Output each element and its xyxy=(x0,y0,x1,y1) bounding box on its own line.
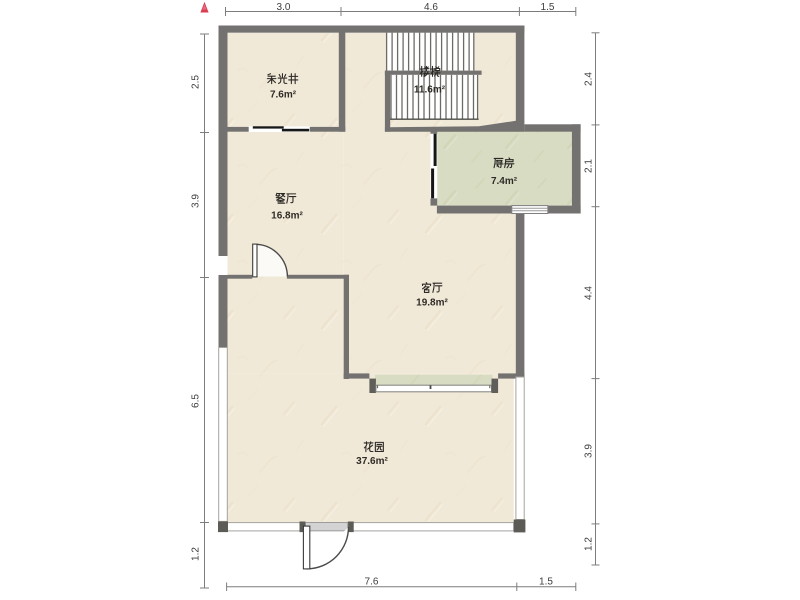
svg-text:7.6: 7.6 xyxy=(365,577,379,588)
svg-text:1.2: 1.2 xyxy=(584,537,595,551)
svg-text:3.0: 3.0 xyxy=(277,2,291,13)
svg-text:7.6m²: 7.6m² xyxy=(270,90,297,101)
svg-text:37.6m²: 37.6m² xyxy=(356,456,388,467)
svg-text:2.5: 2.5 xyxy=(191,75,202,89)
svg-text:4.6: 4.6 xyxy=(424,2,438,13)
svg-text:4.4: 4.4 xyxy=(584,286,595,300)
svg-text:3.9: 3.9 xyxy=(584,444,595,458)
svg-text:6.5: 6.5 xyxy=(191,394,202,408)
svg-text:3.9: 3.9 xyxy=(191,194,202,208)
svg-text:1.5: 1.5 xyxy=(541,2,555,13)
svg-text:1.5: 1.5 xyxy=(539,577,553,588)
svg-text:11.6m²: 11.6m² xyxy=(414,85,446,96)
svg-text:7.4m²: 7.4m² xyxy=(491,176,518,187)
svg-text:16.8m²: 16.8m² xyxy=(271,211,303,222)
svg-text:2.4: 2.4 xyxy=(584,72,595,86)
svg-text:19.8m²: 19.8m² xyxy=(416,298,448,309)
svg-text:1.2: 1.2 xyxy=(191,547,202,561)
svg-text:2.1: 2.1 xyxy=(584,159,595,173)
